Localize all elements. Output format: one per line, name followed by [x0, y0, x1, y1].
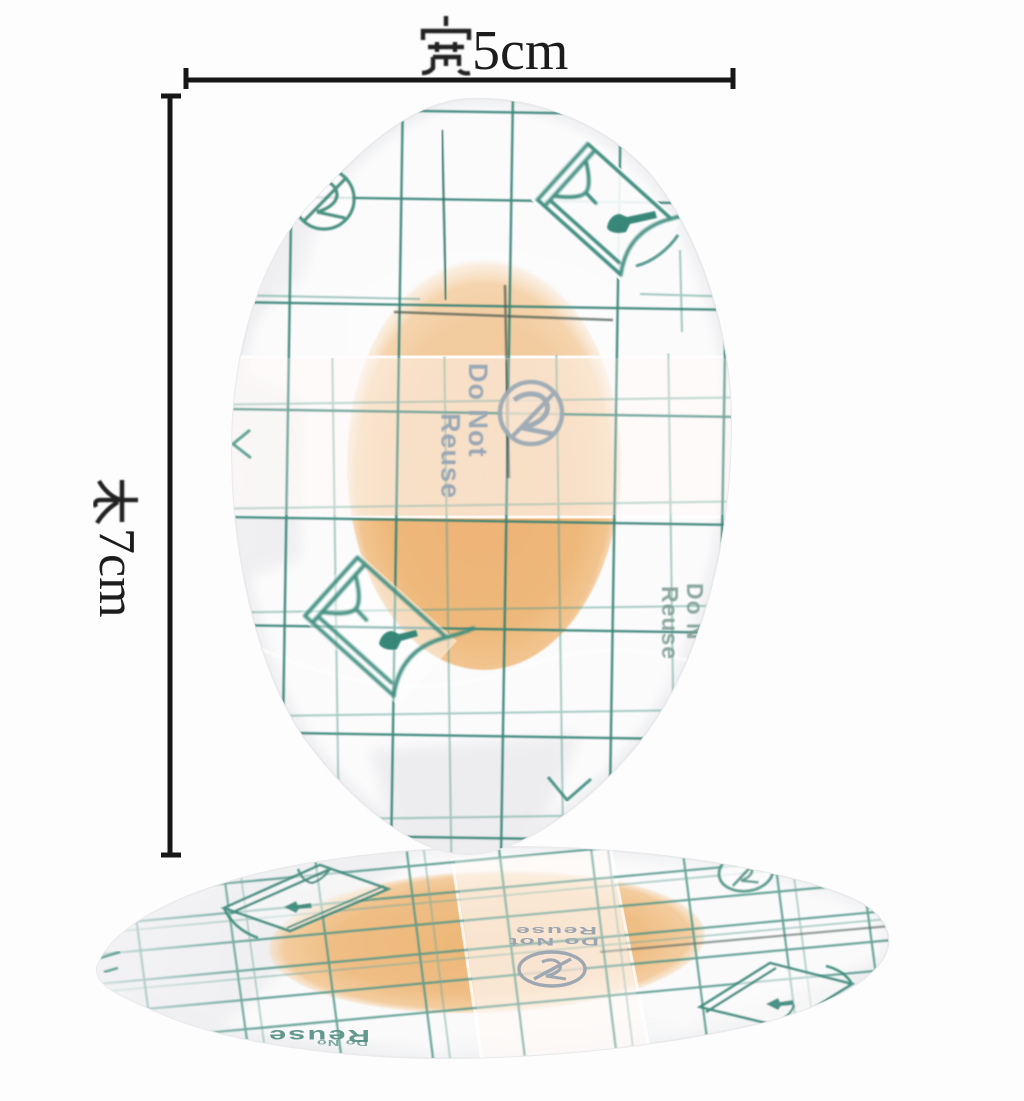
svg-text:7cm: 7cm [88, 528, 145, 618]
svg-text:5cm: 5cm [472, 20, 568, 82]
svg-text:Do NotReuse: Do NotReuse [508, 924, 599, 948]
svg-text:Do No: Do No [316, 1038, 368, 1047]
